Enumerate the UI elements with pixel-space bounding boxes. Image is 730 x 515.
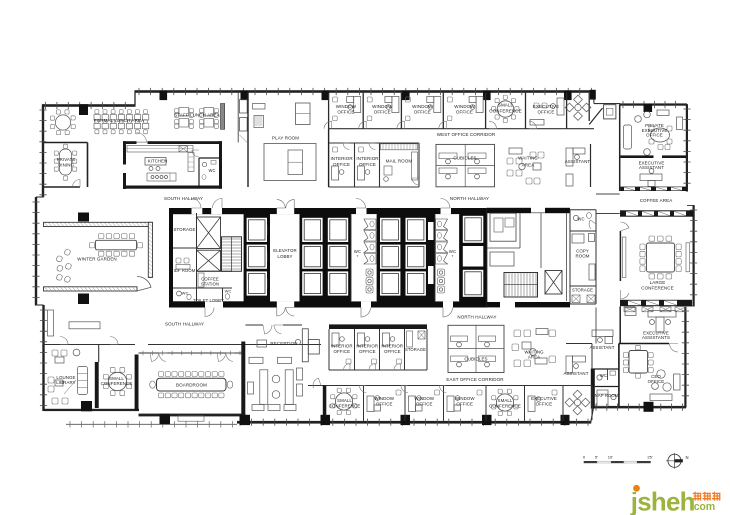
svg-text:ROOM: ROOM — [575, 254, 589, 259]
svg-text:CONFERENCE: CONFERENCE — [329, 403, 361, 408]
svg-text:WINDOW: WINDOW — [412, 104, 433, 109]
svg-text:FORMAL LUNCH AREA: FORMAL LUNCH AREA — [94, 118, 144, 123]
svg-text:OFFICE: OFFICE — [416, 401, 433, 406]
svg-text:ASSISTANTS: ASSISTANTS — [642, 335, 670, 340]
svg-text:ASSISTANT: ASSISTANT — [639, 165, 664, 170]
svg-text:OFFICE: OFFICE — [359, 162, 376, 167]
svg-text:KITCHEN: KITCHEN — [148, 159, 168, 164]
svg-text:OFFICE: OFFICE — [537, 110, 554, 115]
svg-text:CONFERENCE: CONFERENCE — [489, 108, 522, 113]
svg-text:WC: WC — [225, 288, 232, 293]
svg-text:OFFICE: OFFICE — [456, 401, 473, 406]
svg-text:NORTH HALLWAY: NORTH HALLWAY — [457, 315, 496, 320]
svg-text:OFFICE: OFFICE — [333, 162, 350, 167]
svg-text:NAP ROOM: NAP ROOM — [595, 393, 619, 398]
svg-text:WINDOW: WINDOW — [454, 104, 475, 109]
svg-text:WC: WC — [208, 168, 215, 173]
svg-text:CONFERENCE: CONFERENCE — [489, 403, 521, 408]
svg-text:LARGE: LARGE — [650, 280, 666, 285]
svg-text:INTERIOR: INTERIOR — [356, 156, 379, 161]
svg-text:OFFICE: OFFICE — [384, 349, 401, 354]
svg-text:BOARDROOM: BOARDROOM — [176, 382, 207, 387]
svg-text:OFFICE: OFFICE — [376, 401, 393, 406]
svg-text:STATION: STATION — [201, 281, 219, 286]
svg-text:ASSISTANT: ASSISTANT — [565, 159, 591, 164]
svg-text:COFFEE AREA: COFFEE AREA — [640, 198, 673, 203]
svg-text:N: N — [686, 455, 689, 460]
svg-text:CUBICLES: CUBICLES — [464, 357, 487, 362]
svg-text:OFFICE: OFFICE — [646, 133, 663, 138]
svg-text:WC: WC — [577, 216, 584, 221]
svg-text:LIBRARY: LIBRARY — [56, 380, 75, 385]
svg-text:WAITING: WAITING — [518, 156, 538, 161]
svg-text:RECEPTION: RECEPTION — [270, 341, 297, 346]
svg-text:OFFICE: OFFICE — [359, 349, 376, 354]
svg-text:CUBICLES: CUBICLES — [453, 156, 476, 161]
svg-text:WINDOW: WINDOW — [336, 104, 357, 109]
svg-text:CONFERENCE: CONFERENCE — [101, 381, 133, 386]
svg-text:AREA: AREA — [528, 355, 540, 360]
svg-text:OFFICE: OFFICE — [374, 110, 391, 115]
svg-text:STORAGE: STORAGE — [405, 347, 426, 352]
svg-text:5': 5' — [595, 454, 598, 459]
svg-text:TOILET LOBBY: TOILET LOBBY — [193, 298, 224, 303]
svg-text:STAFF LUNCH AREA: STAFF LUNCH AREA — [174, 113, 220, 118]
svg-text:SMALL: SMALL — [498, 103, 514, 108]
svg-text:STORAGE: STORAGE — [572, 288, 593, 293]
svg-text:PLAY ROOM: PLAY ROOM — [272, 136, 299, 141]
svg-text:jsheh: jsheh — [630, 488, 695, 515]
svg-text:OFFICE: OFFICE — [456, 110, 473, 115]
svg-text:STORAGE: STORAGE — [173, 227, 195, 232]
svg-text:INTERIOR: INTERIOR — [330, 156, 353, 161]
svg-text:10': 10' — [608, 454, 614, 459]
svg-text:AREA: AREA — [522, 163, 535, 168]
svg-text:WC: WC — [600, 373, 607, 378]
svg-text:ASSISTANT: ASSISTANT — [564, 371, 589, 376]
svg-text:OFFICE: OFFICE — [414, 110, 431, 115]
svg-text:WEST OFFICE CORRIDOR: WEST OFFICE CORRIDOR — [437, 132, 496, 137]
svg-text:NORTH HALLWAY: NORTH HALLWAY — [450, 196, 489, 201]
svg-text:IDF ROOM: IDF ROOM — [174, 268, 196, 273]
svg-text:OFFICE: OFFICE — [536, 401, 553, 406]
svg-text:OFFICE: OFFICE — [333, 349, 350, 354]
svg-text:WC: WC — [182, 290, 189, 295]
svg-text:DINING: DINING — [58, 162, 74, 167]
svg-text:SOUTH HALLWAY: SOUTH HALLWAY — [165, 321, 204, 326]
svg-text:.com: .com — [691, 501, 715, 513]
svg-text:WINDOW: WINDOW — [372, 104, 393, 109]
svg-text:LOBBY: LOBBY — [277, 254, 292, 259]
svg-text:CONFERENCE: CONFERENCE — [641, 285, 674, 290]
svg-text:ELEVATOR: ELEVATOR — [273, 248, 297, 253]
svg-text:25': 25' — [647, 454, 653, 459]
svg-text:ASSISTANT: ASSISTANT — [590, 345, 615, 350]
svg-text:MAIL ROOM: MAIL ROOM — [386, 158, 413, 163]
svg-text:OFFICE: OFFICE — [337, 110, 354, 115]
svg-text:OFFICE: OFFICE — [648, 379, 665, 384]
svg-text:EAST OFFICE CORRIDOR: EAST OFFICE CORRIDOR — [446, 377, 504, 382]
svg-text:EXECUTIVE: EXECUTIVE — [533, 104, 559, 109]
svg-text:WINTER GARDEN: WINTER GARDEN — [77, 256, 117, 261]
